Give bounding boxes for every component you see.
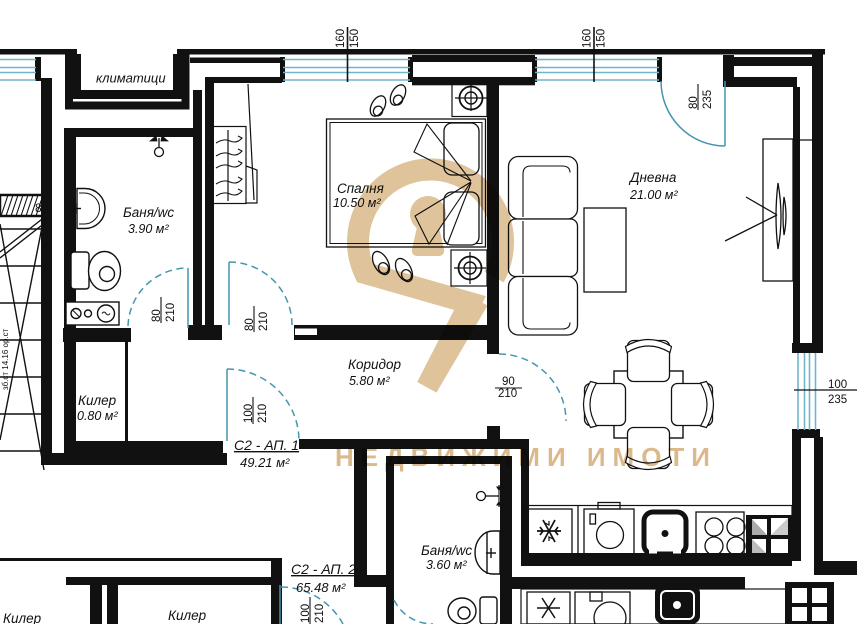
svg-text:Дневна: Дневна — [628, 170, 677, 185]
svg-text:210: 210 — [257, 404, 269, 423]
svg-text:3.60 м²: 3.60 м² — [426, 558, 467, 572]
svg-text:Килер: Килер — [168, 608, 207, 623]
svg-text:160: 160 — [335, 29, 347, 48]
svg-text:65.48 м²: 65.48 м² — [296, 580, 346, 595]
svg-text:100: 100 — [828, 379, 847, 391]
svg-text:8: 8 — [35, 201, 42, 215]
svg-text:5.80 м²: 5.80 м² — [349, 374, 390, 388]
svg-text:210: 210 — [258, 312, 270, 331]
svg-text:Килер: Килер — [3, 611, 42, 624]
svg-text:235: 235 — [828, 394, 847, 406]
svg-text:210: 210 — [498, 388, 517, 400]
svg-text:210: 210 — [314, 604, 326, 623]
svg-text:21.00 м²: 21.00 м² — [629, 188, 678, 202]
svg-text:0.80 м²: 0.80 м² — [77, 409, 118, 423]
svg-text:150: 150 — [596, 29, 608, 48]
svg-text:49.21 м²: 49.21 м² — [240, 455, 290, 470]
svg-text:НЕДВИЖИМИ ИМОТИ: НЕДВИЖИМИ ИМОТИ — [335, 442, 717, 472]
svg-text:С2 - АП. 1: С2 - АП. 1 — [234, 437, 299, 453]
svg-text:зб.ст 14.16 ор.ст: зб.ст 14.16 ор.ст — [1, 328, 10, 390]
svg-text:С2 - АП. 2: С2 - АП. 2 — [291, 561, 356, 577]
svg-text:160: 160 — [582, 29, 594, 48]
svg-text:Коридор: Коридор — [348, 357, 401, 372]
svg-text:климатици: климатици — [96, 71, 166, 86]
svg-text:Баня/wc: Баня/wc — [421, 543, 472, 558]
svg-text:210: 210 — [165, 303, 177, 322]
svg-text:Килер: Килер — [78, 393, 117, 408]
svg-text:90: 90 — [502, 376, 515, 388]
svg-text:Баня/wc: Баня/wc — [123, 205, 174, 220]
svg-text:150: 150 — [349, 29, 361, 48]
svg-text:235: 235 — [702, 90, 714, 109]
svg-text:3.90 м²: 3.90 м² — [128, 222, 169, 236]
